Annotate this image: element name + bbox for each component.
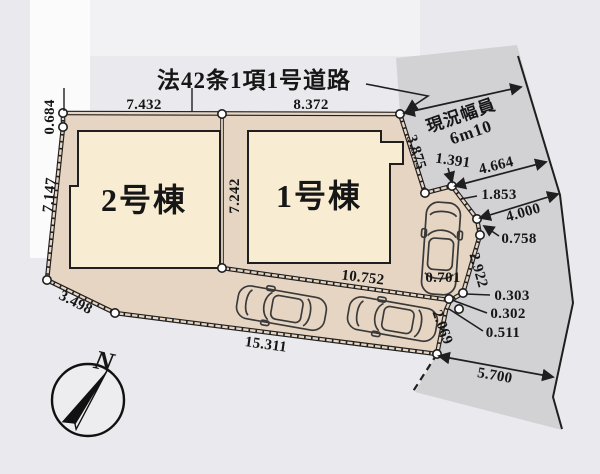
dim-road-step2: 1.853 [481, 187, 516, 203]
dim-left-top: 0.684 [42, 99, 58, 134]
building-1-label: 1号棟 [276, 178, 362, 214]
dim-right-small2: 0.302 [490, 306, 525, 322]
dim-top-edge-left: 7.432 [126, 97, 161, 113]
dim-top-edge-right: 8.372 [293, 97, 328, 113]
dim-center-divider: 7.242 [227, 178, 243, 213]
dim-road-step3: 0.758 [501, 231, 536, 247]
road-law-title: 法42条1項1号道路 [157, 67, 351, 93]
site-plan-canvas: N 法42条1項1号道路 現況幅員 6m10 2号棟 1号棟 7.432 8.3… [0, 0, 600, 474]
site-plan: N 法42条1項1号道路 現況幅員 6m10 2号棟 1号棟 7.432 8.3… [0, 0, 600, 474]
dim-right-small3: 0.511 [486, 325, 520, 341]
scan-artifact-top [90, 0, 420, 56]
building-2-label: 2号棟 [101, 182, 187, 218]
dim-car-bay: 0.701 [425, 270, 460, 286]
dim-right-small1: 0.303 [494, 288, 529, 304]
